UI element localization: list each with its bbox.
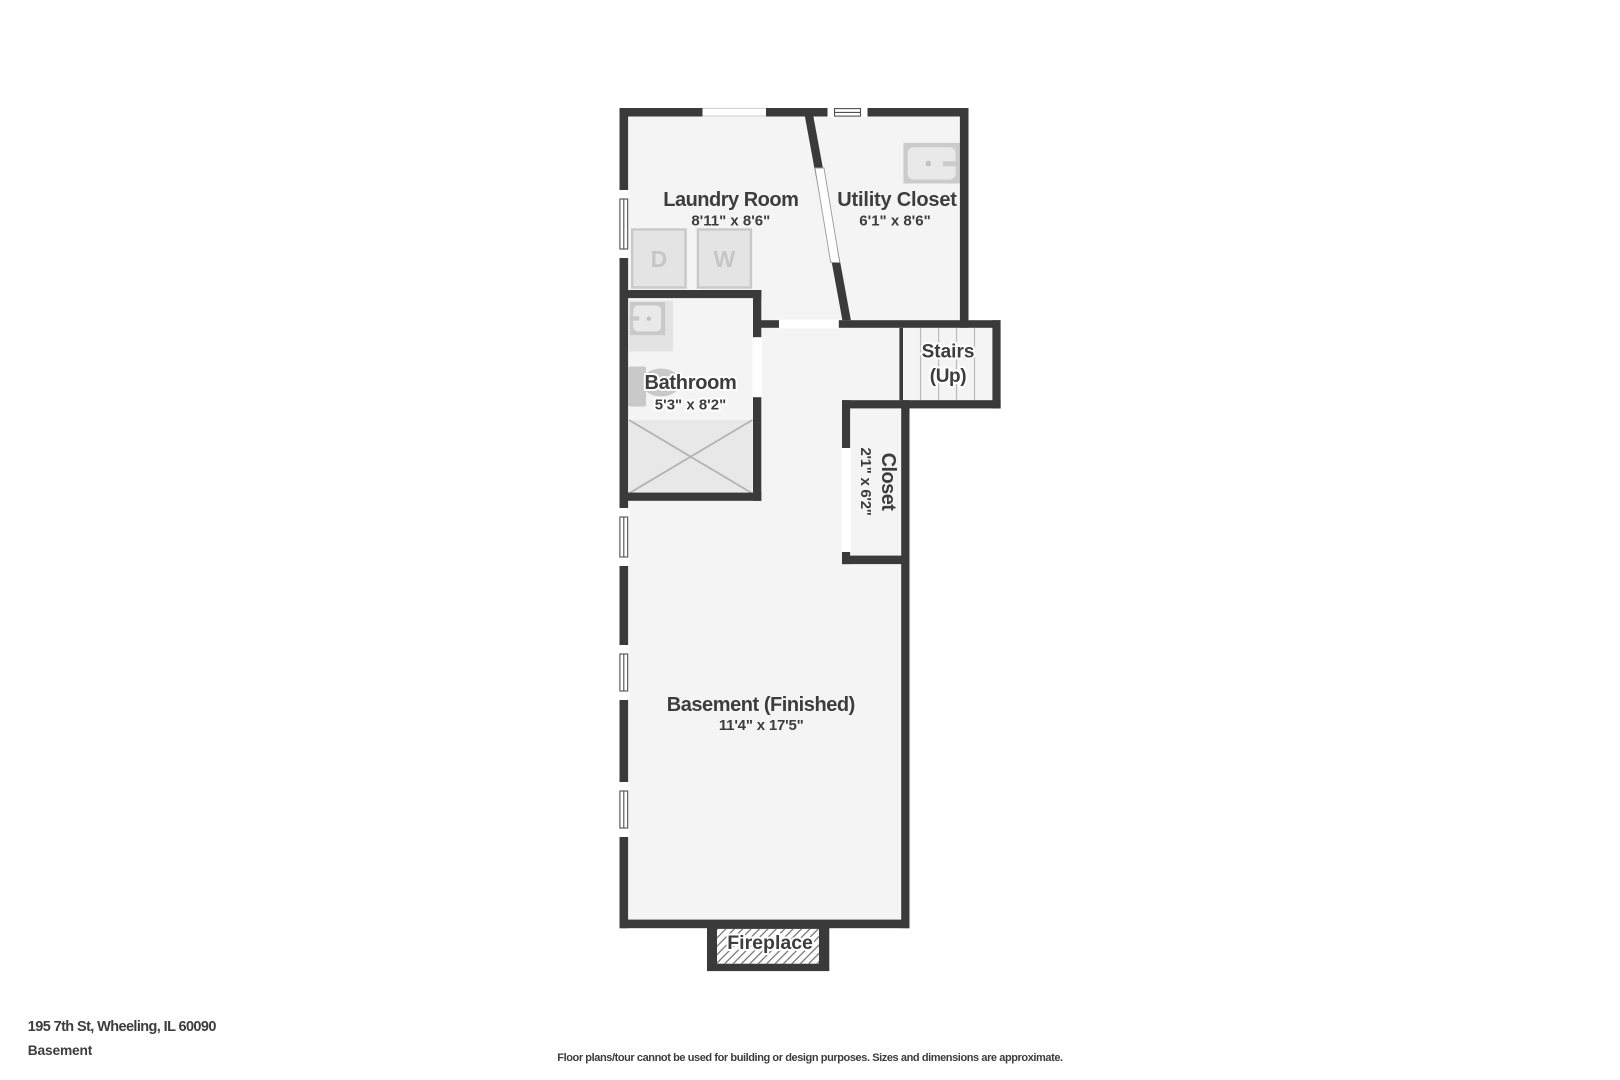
svg-text:Laundry Room: Laundry Room [663,189,798,211]
svg-text:Fireplace: Fireplace [727,932,813,954]
svg-text:2'1" x 6'2": 2'1" x 6'2" [857,447,874,515]
svg-text:5'3" x 8'2": 5'3" x 8'2" [655,397,726,414]
svg-text:Utility Closet: Utility Closet [837,189,957,211]
svg-text:Basement (Finished): Basement (Finished) [667,694,855,716]
svg-text:Stairs: Stairs [922,342,975,363]
svg-text:W: W [714,246,736,272]
svg-text:195 7th St, Wheeling, IL 60090: 195 7th St, Wheeling, IL 60090 [28,1019,217,1035]
svg-text:Bathroom: Bathroom [644,372,736,394]
svg-text:(Up): (Up) [930,366,966,387]
svg-text:6'1" x 8'6": 6'1" x 8'6" [859,212,930,229]
svg-text:Floor plans/tour cannot be use: Floor plans/tour cannot be used for buil… [557,1052,1063,1064]
svg-text:8'11" x 8'6": 8'11" x 8'6" [691,212,770,229]
svg-text:Closet: Closet [877,453,899,512]
svg-text:D: D [651,246,668,272]
svg-text:Basement: Basement [28,1043,93,1058]
svg-text:11'4" x 17'5": 11'4" x 17'5" [719,717,804,734]
